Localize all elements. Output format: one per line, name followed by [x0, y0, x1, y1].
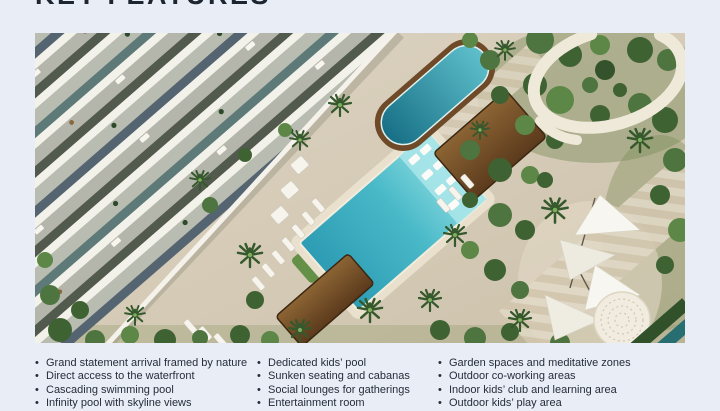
feature-item: Social lounges for gatherings	[257, 384, 432, 397]
hero-aerial-image	[35, 33, 685, 343]
feature-item: Dedicated kids’ pool	[257, 357, 432, 370]
feature-column-3: Garden spaces and meditative zones Outdo…	[438, 357, 688, 411]
slide-canvas: { "title": "KEY FEATURES", "hero_image":…	[0, 0, 720, 405]
feature-item: Sunken seating and cabanas	[257, 370, 432, 383]
feature-column-1: Grand statement arrival framed by nature…	[35, 357, 250, 411]
feature-item: Cascading swimming pool	[35, 384, 250, 397]
feature-item: Garden spaces and meditative zones	[438, 357, 688, 370]
feature-item: Infinity pool with skyline views	[35, 397, 250, 410]
feature-item: Outdoor kids’ play area	[438, 397, 688, 410]
feature-item: Indoor kids’ club and learning area	[438, 384, 688, 397]
aerial-scene	[35, 33, 685, 343]
feature-item: Entertainment room	[257, 397, 432, 410]
page-title: KEY FEATURES	[35, 0, 271, 9]
feature-item: Outdoor co-working areas	[438, 370, 688, 383]
feature-item: Direct access to the waterfront	[35, 370, 250, 383]
feature-column-2: Dedicated kids’ pool Sunken seating and …	[257, 357, 432, 411]
feature-item: Grand statement arrival framed by nature	[35, 357, 250, 370]
